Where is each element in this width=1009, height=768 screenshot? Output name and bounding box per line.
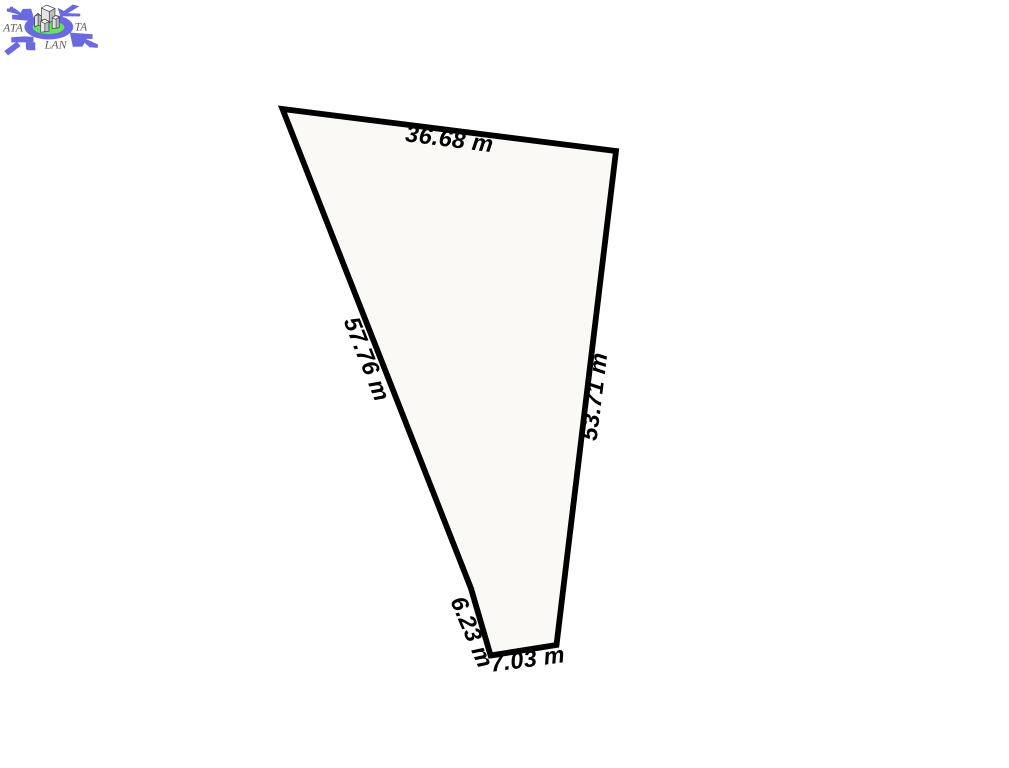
svg-text:TA: TA — [75, 22, 89, 34]
svg-text:ATA: ATA — [2, 21, 24, 35]
svg-text:LAN: LAN — [44, 37, 68, 51]
